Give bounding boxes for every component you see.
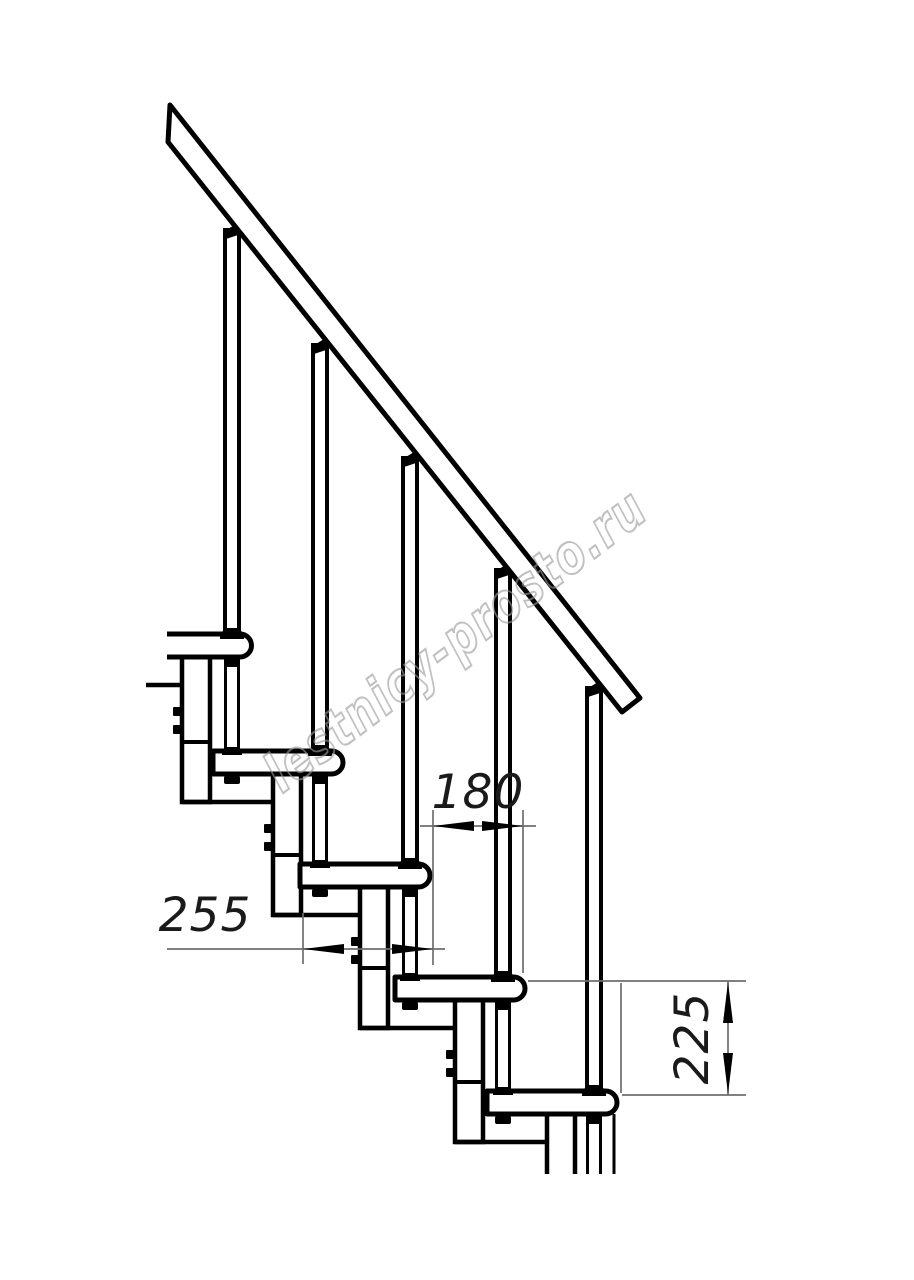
- baluster-1: [225, 230, 239, 634]
- staircase-drawing: 180 255 225 lestnicy-prosto.ru: [0, 0, 914, 1280]
- tie-rod: [226, 657, 239, 753]
- baluster-2: [313, 345, 327, 751]
- dimension-225-label: 225: [665, 992, 720, 1085]
- nut: [224, 659, 240, 667]
- nut: [312, 889, 328, 897]
- dimension-225: 225: [528, 981, 746, 1095]
- baluster-5: [587, 688, 601, 1091]
- riser-column-3: [360, 887, 388, 1028]
- riser-column-4: [455, 1000, 483, 1142]
- dimension-180: 180: [420, 765, 536, 973]
- tie-rod: [404, 887, 417, 979]
- arrow-left: [303, 944, 344, 954]
- dimension-255-label: 255: [159, 888, 252, 943]
- nut: [495, 1116, 511, 1124]
- arrow-left: [433, 821, 474, 831]
- arrow-down: [723, 1053, 733, 1094]
- riser-column-1: [182, 657, 210, 802]
- tie-rod: [497, 1000, 510, 1093]
- nut: [495, 1002, 511, 1010]
- staircase-drawing-page: 180 255 225 lestnicy-prosto.ru: [0, 0, 914, 1280]
- tie-rod: [314, 774, 327, 866]
- arrow-up: [723, 982, 733, 1023]
- nut: [224, 776, 240, 784]
- nut: [586, 1116, 602, 1124]
- nut: [402, 1002, 418, 1010]
- nut: [402, 889, 418, 897]
- dimension-180-label: 180: [432, 765, 525, 820]
